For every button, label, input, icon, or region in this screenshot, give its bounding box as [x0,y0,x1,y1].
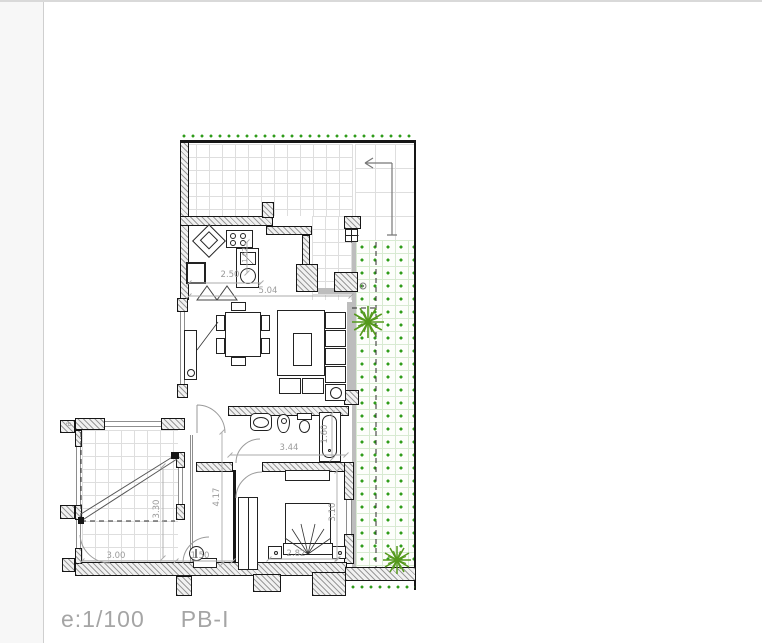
kitchen-door-symbol [197,286,237,300]
tree-icon [352,306,384,338]
dim-living-width: 5.04 [253,286,283,296]
edge-marker: B [63,422,73,432]
dim-kitchen-width: 2.50 [215,270,245,280]
dim-hall-length: 4.17 [212,482,222,512]
document-page: 2.50 5.04 1.62 3.44 1.60 4.17 3.10 2.82 … [45,2,762,643]
title-block: e:1/100 PB-I [61,606,229,633]
utility-marker [360,283,366,289]
dim-patio-depth: 3.30 [152,494,162,524]
neighbor-stub-c [62,558,75,572]
dim-patio-width: 3.00 [101,551,131,561]
dim-bath-width: 3.44 [274,443,304,453]
dim-bedroom-depth: 3.10 [328,497,338,527]
plan-name-label: PB-I [181,606,230,633]
stair-direction-arrow [365,158,397,235]
dim-bed-width: 2.82 [281,549,311,559]
radiator-pointer [197,322,218,350]
ramp-cap [78,517,84,524]
viewer-left-margin [0,2,44,643]
plan-linework [75,130,420,600]
scale-label: e:1/100 [61,606,145,633]
ramp-cap [171,452,179,459]
neighbor-stub-b [60,505,75,519]
dim-bathtub-length: 1.60 [320,419,330,449]
dimension-lines [80,240,354,567]
dim-kitchen-counter: 1.62 [240,240,250,270]
tree-icon [383,546,411,574]
dim-wc-width: 1.50 [185,551,215,561]
door-arcs [80,405,262,563]
pillar-window-cross [346,230,359,243]
floor-plan: 2.50 5.04 1.62 3.44 1.60 4.17 3.10 2.82 … [75,130,420,600]
